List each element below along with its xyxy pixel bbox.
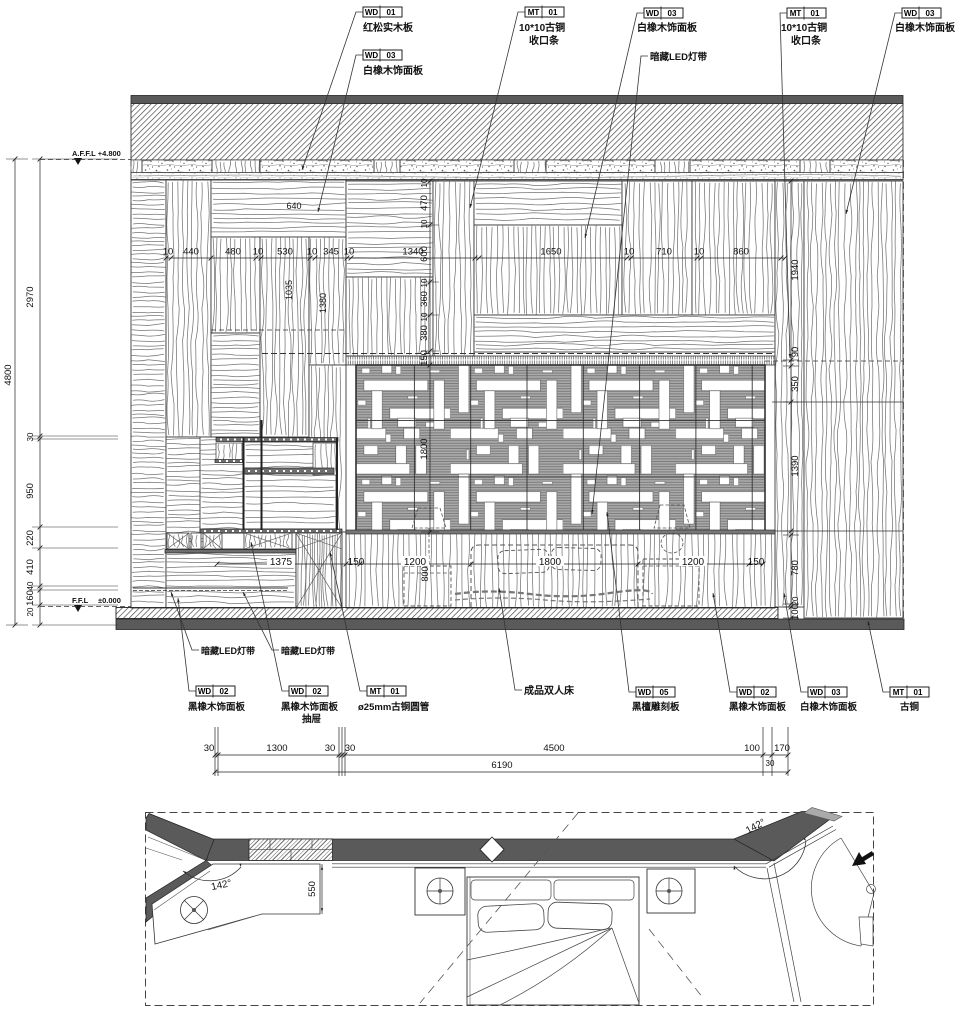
svg-text:1375: 1375 [270, 557, 293, 568]
svg-text:WD: WD [365, 8, 379, 17]
svg-text:1650: 1650 [540, 247, 561, 258]
svg-text:150: 150 [348, 557, 365, 568]
svg-text:暗藏LED灯带: 暗藏LED灯带 [650, 51, 708, 63]
svg-text:02: 02 [220, 687, 229, 696]
svg-text:10: 10 [694, 247, 705, 258]
svg-text:WD: WD [810, 688, 824, 697]
svg-text:1390: 1390 [790, 455, 801, 476]
svg-text:345: 345 [323, 247, 339, 258]
svg-text:1035: 1035 [284, 280, 294, 300]
svg-text:白橡木饰面板: 白橡木饰面板 [637, 21, 698, 34]
svg-text:02: 02 [761, 688, 770, 697]
svg-text:170: 170 [774, 743, 790, 754]
svg-text:01: 01 [391, 687, 400, 696]
svg-text:抽屉: 抽屉 [302, 713, 322, 725]
svg-text:100: 100 [744, 743, 760, 754]
svg-text:成品双人床: 成品双人床 [524, 684, 575, 697]
svg-text:MT: MT [790, 9, 802, 18]
svg-text:40: 40 [26, 581, 35, 590]
svg-text:WD: WD [638, 688, 652, 697]
svg-text:黑檀雕刻板: 黑檀雕刻板 [632, 701, 680, 713]
svg-text:10: 10 [420, 219, 429, 228]
svg-text:410: 410 [25, 559, 36, 575]
svg-text:MT: MT [893, 688, 905, 697]
svg-text:4800: 4800 [3, 364, 14, 385]
svg-text:20: 20 [791, 596, 800, 605]
svg-text:10: 10 [344, 247, 355, 258]
svg-text:WD: WD [291, 687, 305, 696]
svg-text:1380: 1380 [318, 293, 328, 313]
svg-text:1300: 1300 [266, 743, 287, 754]
svg-text:01: 01 [811, 9, 820, 18]
svg-text:600: 600 [419, 246, 430, 262]
svg-text:30: 30 [204, 743, 215, 754]
svg-text:10*10古铜: 10*10古铜 [781, 21, 827, 34]
svg-text:10: 10 [253, 247, 264, 258]
svg-text:10: 10 [420, 278, 429, 287]
svg-text:530: 530 [277, 247, 293, 258]
svg-text:800: 800 [420, 566, 430, 581]
svg-text:古铜: 古铜 [900, 701, 920, 713]
svg-text:710: 710 [656, 247, 672, 258]
svg-text:WD: WD [904, 9, 918, 18]
svg-text:ø25mm古铜圆管: ø25mm古铜圆管 [358, 701, 430, 713]
svg-text:1200: 1200 [682, 557, 705, 568]
svg-text:860: 860 [733, 247, 749, 258]
svg-text:10*10古铜: 10*10古铜 [519, 21, 565, 34]
svg-text:白橡木饰面板: 白橡木饰面板 [363, 64, 424, 77]
svg-text:03: 03 [832, 688, 841, 697]
svg-text:白橡木饰面板: 白橡木饰面板 [800, 701, 858, 713]
svg-text:150: 150 [748, 557, 765, 568]
svg-text:550: 550 [307, 881, 318, 897]
svg-text:收口条: 收口条 [791, 34, 822, 47]
svg-text:收口条: 收口条 [529, 34, 560, 47]
svg-text:640: 640 [286, 201, 301, 211]
svg-text:03: 03 [668, 9, 677, 18]
svg-text:10: 10 [420, 178, 429, 187]
svg-text:黑橡木饰面板: 黑橡木饰面板 [281, 701, 339, 713]
svg-text:WD: WD [198, 687, 212, 696]
svg-text:30: 30 [345, 743, 356, 754]
svg-text:30: 30 [325, 743, 336, 754]
svg-text:03: 03 [926, 9, 935, 18]
svg-text:360: 360 [419, 291, 430, 307]
svg-text:02: 02 [313, 687, 322, 696]
svg-text:MT: MT [370, 687, 382, 696]
svg-text:470: 470 [419, 195, 430, 211]
svg-text:黑橡木饰面板: 黑橡木饰面板 [188, 701, 246, 713]
svg-text:暗藏LED灯带: 暗藏LED灯带 [201, 645, 255, 656]
svg-text:01: 01 [387, 8, 396, 17]
svg-text:100: 100 [790, 604, 801, 620]
svg-text:30: 30 [26, 432, 35, 441]
svg-text:暗藏LED灯带: 暗藏LED灯带 [281, 645, 335, 656]
svg-text:WD: WD [365, 51, 379, 60]
svg-text:20: 20 [26, 607, 35, 616]
svg-text:10: 10 [420, 312, 429, 321]
svg-text:白橡木饰面板: 白橡木饰面板 [895, 21, 956, 34]
svg-text:WD: WD [739, 688, 753, 697]
svg-text:220: 220 [25, 530, 36, 546]
svg-text:红松实木板: 红松实木板 [363, 21, 414, 34]
svg-text:03: 03 [387, 51, 396, 60]
svg-text:10: 10 [624, 247, 635, 258]
svg-text:6190: 6190 [491, 760, 512, 771]
svg-text:1800: 1800 [419, 438, 430, 459]
svg-text:01: 01 [549, 8, 558, 17]
svg-text:MT: MT [528, 8, 540, 17]
svg-text:1940: 1940 [790, 259, 801, 280]
svg-text:10: 10 [307, 247, 318, 258]
svg-text:4500: 4500 [543, 743, 564, 754]
svg-text:480: 480 [225, 247, 241, 258]
svg-text:±0.000: ±0.000 [98, 596, 121, 605]
svg-text:黑橡木饰面板: 黑橡木饰面板 [729, 701, 787, 713]
svg-text:150: 150 [419, 350, 430, 366]
svg-text:950: 950 [25, 483, 36, 499]
svg-text:WD: WD [646, 9, 660, 18]
svg-text:A.F.F.L +4.800: A.F.F.L +4.800 [72, 149, 121, 158]
svg-text:05: 05 [660, 688, 669, 697]
svg-text:780: 780 [790, 560, 801, 576]
svg-text:1200: 1200 [404, 557, 427, 568]
svg-text:350: 350 [790, 376, 801, 392]
svg-text:1800: 1800 [539, 557, 562, 568]
svg-text:160: 160 [25, 590, 36, 606]
svg-text:F.F.L: F.F.L [72, 596, 89, 605]
svg-text:440: 440 [183, 247, 199, 258]
svg-text:2970: 2970 [25, 286, 36, 307]
svg-text:30: 30 [766, 759, 775, 768]
svg-text:90: 90 [790, 347, 801, 358]
svg-text:10: 10 [163, 247, 174, 258]
svg-text:01: 01 [914, 688, 923, 697]
svg-text:380: 380 [419, 325, 430, 341]
